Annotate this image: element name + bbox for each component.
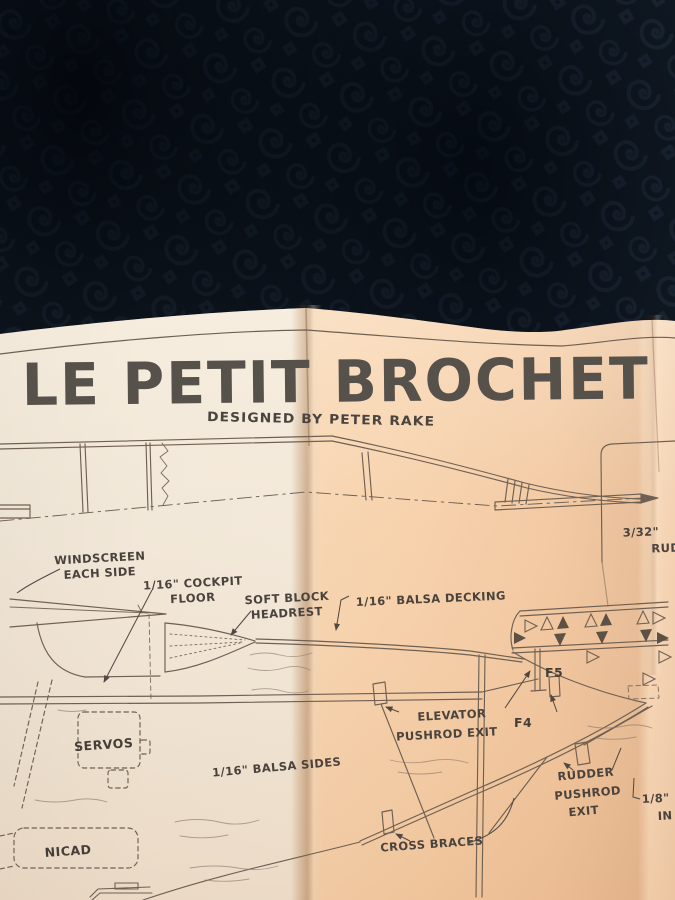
plan-title: LE PETIT BROCHET [21, 344, 650, 419]
label-former-f5: F5 [545, 665, 563, 680]
label-rudder-exit-line3: EXIT [568, 803, 600, 820]
label-rudder-note-line1: 3/32" [623, 524, 660, 539]
plan-photo: LE PETIT BROCHET DESIGNED BY PETER RAKE [0, 0, 675, 900]
label-rudder-note-line2: RUD [651, 541, 675, 556]
label-former-f4: F4 [514, 715, 532, 730]
label-stock-note-line1: 1/8" [641, 791, 669, 806]
label-cockpit-floor-line2: FLOOR [170, 590, 216, 606]
label-stock-note-line2: IN [657, 808, 672, 823]
